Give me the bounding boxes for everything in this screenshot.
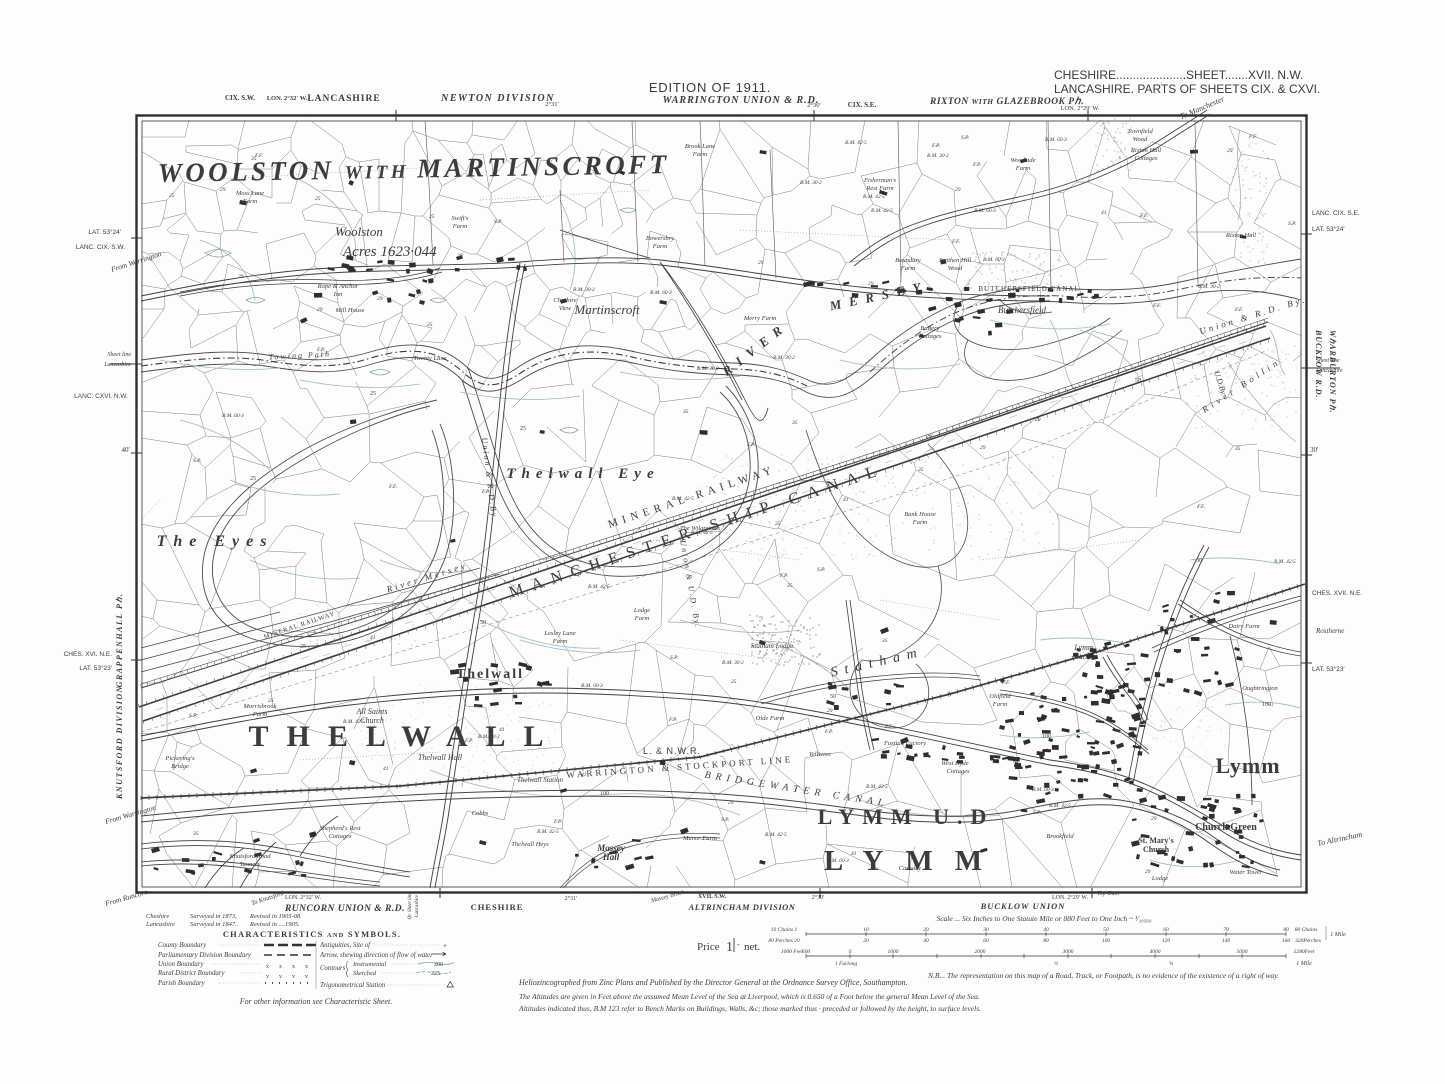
- svg-text:F.P.: F.P.: [824, 729, 833, 735]
- svg-text:KNUTSFORD DIVISION: KNUTSFORD DIVISION: [115, 685, 124, 800]
- svg-text:Contours: Contours: [320, 965, 346, 972]
- svg-text:25: 25: [268, 698, 274, 704]
- svg-text:25: 25: [520, 426, 526, 432]
- svg-text:v: v: [305, 974, 308, 980]
- svg-text:Bridge: Bridge: [171, 763, 189, 770]
- svg-text:Surveyed in 1847..: Surveyed in 1847..: [190, 921, 239, 928]
- svg-text:80 Chains: 80 Chains: [1295, 927, 1317, 933]
- svg-text:140: 140: [1222, 937, 1231, 944]
- svg-text:LAT. 53°24′: LAT. 53°24′: [1312, 225, 1345, 233]
- svg-text:50: 50: [830, 694, 836, 700]
- svg-text:LON. 2°29′ W.: LON. 2°29′ W.: [1052, 894, 1089, 901]
- svg-text:Thelwall Station: Thelwall Station: [517, 776, 564, 784]
- svg-text:Fisherman's: Fisherman's: [863, 177, 897, 184]
- svg-text:Dairy Farm: Dairy Farm: [1227, 623, 1260, 630]
- svg-text:29: 29: [827, 708, 833, 714]
- svg-text:F.F.: F.F.: [884, 724, 893, 730]
- svg-text:35: 35: [682, 409, 689, 415]
- svg-text:BUTCHERSFIELD CANAL: BUTCHERSFIELD CANAL: [978, 285, 1079, 293]
- svg-text:29: 29: [955, 187, 961, 193]
- svg-text:Top Dam: Top Dam: [1097, 891, 1120, 897]
- svg-text:Shepherd's Rest: Shepherd's Rest: [319, 825, 360, 832]
- svg-text:Woodside: Woodside: [1010, 157, 1035, 164]
- svg-text:35: 35: [1234, 446, 1241, 452]
- svg-text:Moss Lane: Moss Lane: [235, 190, 264, 197]
- svg-text:Cheshire: Cheshire: [146, 913, 169, 920]
- svg-text:1000: 1000: [888, 949, 899, 955]
- svg-text:Farm: Farm: [552, 638, 568, 645]
- svg-text:F.P.: F.P.: [746, 442, 755, 448]
- svg-text:The Eyes: The Eyes: [157, 533, 274, 550]
- svg-text:B.M. 60·3: B.M. 60·3: [1032, 787, 1054, 793]
- svg-text:29: 29: [868, 281, 874, 287]
- svg-text:60: 60: [1163, 927, 1169, 933]
- svg-text:29: 29: [1151, 816, 1157, 822]
- svg-text:0: 0: [849, 949, 852, 955]
- svg-text:GRAPPENHALL Pℎ.: GRAPPENHALL Pℎ.: [115, 593, 124, 688]
- svg-text:Lancashire: Lancashire: [1315, 368, 1343, 374]
- svg-text:Cottages: Cottages: [918, 333, 942, 340]
- svg-text:Martinscroft: Martinscroft: [573, 302, 640, 317]
- svg-text:WARRINGTON UNION & R.D.: WARRINGTON UNION & R.D.: [663, 95, 820, 106]
- svg-text:B.M. 60·3: B.M. 60·3: [983, 257, 1005, 263]
- svg-text:Parish Boundary: Parish Boundary: [157, 980, 206, 987]
- svg-text:Station: Station: [1073, 652, 1096, 661]
- svg-text:4000: 4000: [1150, 948, 1161, 955]
- svg-text:x: x: [292, 964, 295, 970]
- svg-text:Oldfield: Oldfield: [989, 693, 1011, 700]
- svg-text:View: View: [559, 305, 572, 312]
- svg-text:Farm: Farm: [912, 519, 928, 526]
- svg-text:Water Tower: Water Tower: [1230, 869, 1263, 876]
- svg-text:For other information see Char: For other information see Characteristic…: [239, 997, 392, 1006]
- svg-text:Surveyed in 1873,: Surveyed in 1873,: [190, 913, 237, 920]
- svg-text:29: 29: [926, 434, 932, 440]
- svg-text:Swift's: Swift's: [452, 215, 469, 222]
- svg-text:B.M. 60·3: B.M. 60·3: [827, 858, 849, 864]
- svg-text:Union Boundary: Union Boundary: [158, 961, 204, 968]
- svg-text:LAT. 53°23′: LAT. 53°23′: [79, 664, 112, 672]
- svg-text:35: 35: [192, 831, 199, 837]
- svg-text:B.M. 42·5: B.M. 42·5: [1049, 802, 1071, 809]
- svg-text:Inn: Inn: [333, 291, 343, 298]
- svg-text:Lymm: Lymm: [1215, 753, 1280, 778]
- svg-text:S.P.: S.P.: [1033, 810, 1041, 816]
- svg-text:CHES. XVII. N.E.: CHES. XVII. N.E.: [1312, 590, 1362, 597]
- svg-text:Woolston: Woolston: [335, 224, 383, 239]
- svg-text:Farm: Farm: [242, 198, 258, 205]
- svg-text:St. Mary's: St. Mary's: [1138, 836, 1174, 845]
- svg-text:L. & N.W.R.: L. & N.W.R.: [643, 746, 701, 756]
- svg-text:29: 29: [220, 187, 226, 193]
- svg-text:F.P.: F.P.: [668, 717, 677, 723]
- svg-text:Yellivree: Yellivree: [809, 751, 831, 758]
- svg-text:LYMM U.D: LYMM U.D: [818, 804, 995, 829]
- svg-text:CHES. XVI. N.E.: CHES. XVI. N.E.: [64, 651, 113, 658]
- svg-text:F.P.: F.P.: [553, 819, 562, 825]
- svg-text:Church Green: Church Green: [1195, 822, 1257, 833]
- svg-text:29: 29: [1227, 148, 1233, 154]
- svg-text:10: 10: [863, 927, 869, 933]
- svg-text:Cheshire: Cheshire: [553, 297, 576, 304]
- svg-text:2°31′: 2°31′: [565, 895, 578, 902]
- svg-text:LANC. CXVI. N.W.: LANC. CXVI. N.W.: [74, 393, 128, 400]
- svg-text:40: 40: [923, 937, 929, 944]
- svg-text:2°30′: 2°30′: [807, 102, 821, 109]
- svg-text:B.M. 30·2: B.M. 30·2: [722, 660, 744, 666]
- svg-text:S.P.: S.P.: [817, 567, 825, 573]
- svg-text:Lancashire: Lancashire: [415, 894, 420, 918]
- svg-text:Altitudes indicated thus, B.M: Altitudes indicated thus, B.M 123 refer …: [518, 1004, 981, 1013]
- svg-text:Mill House: Mill House: [334, 307, 364, 314]
- svg-text:Farm: Farm: [900, 265, 916, 272]
- svg-text:30: 30: [982, 927, 989, 933]
- svg-text:1 Mile: 1 Mile: [1296, 961, 1312, 967]
- svg-text:80 Perches 20: 80 Perches 20: [768, 938, 800, 944]
- svg-text:B.M. 42·5: B.M. 42·5: [588, 583, 610, 590]
- svg-text:Acres 1623·044: Acres 1623·044: [342, 244, 437, 260]
- svg-text:+: +: [443, 942, 447, 950]
- svg-text:100: 100: [1042, 734, 1051, 740]
- svg-text:LANC. CIX. S.W.: LANC. CIX. S.W.: [76, 244, 125, 251]
- svg-text:LON. 2°32′ W.: LON. 2°32′ W.: [285, 894, 322, 901]
- svg-text:5280Feet: 5280Feet: [1294, 949, 1315, 955]
- svg-text:29: 29: [457, 253, 463, 259]
- svg-text:50: 50: [1103, 927, 1109, 933]
- svg-text:EDITION OF 1911.: EDITION OF 1911.: [649, 80, 771, 95]
- svg-text:Sheet line: Sheet line: [1316, 358, 1340, 364]
- svg-text:Brook Lane: Brook Lane: [685, 143, 715, 150]
- svg-text:35: 35: [917, 467, 924, 473]
- svg-text:Sketched: Sketched: [353, 970, 377, 977]
- svg-text:F.P.: F.P.: [931, 143, 940, 149]
- svg-text:25: 25: [300, 644, 306, 650]
- svg-text:Wood: Wood: [1133, 136, 1148, 143]
- svg-text:29: 29: [1145, 869, 1151, 875]
- svg-text:Swithen Hill: Swithen Hill: [939, 257, 972, 264]
- svg-text:B.M. 42·5: B.M. 42·5: [1274, 558, 1296, 565]
- svg-text:S.P.: S.P.: [961, 135, 969, 141]
- svg-text:29: 29: [980, 445, 986, 451]
- svg-text:Oughtrington: Oughtrington: [1242, 685, 1277, 692]
- svg-text:Lymm: Lymm: [1073, 643, 1094, 652]
- svg-text:Rixton Hall: Rixton Hall: [1225, 232, 1256, 239]
- svg-text:Lesley Lane: Lesley Lane: [543, 630, 575, 637]
- svg-text:-: -: [737, 940, 740, 949]
- svg-text:RUNCORN UNION & R.D.: RUNCORN UNION & R.D.: [284, 904, 405, 914]
- svg-text:160: 160: [1282, 938, 1291, 944]
- svg-text:S.P.: S.P.: [1288, 221, 1296, 227]
- svg-text:B.M. 42·5: B.M. 42·5: [343, 718, 365, 725]
- svg-text:CHESHIRE: CHESHIRE: [471, 902, 524, 912]
- svg-text:F.P.: F.P.: [316, 347, 325, 353]
- svg-text:½: ½: [1054, 960, 1058, 967]
- svg-text:LAT. 53°24′: LAT. 53°24′: [88, 228, 121, 236]
- svg-text:3000: 3000: [1062, 949, 1074, 955]
- svg-text:Lancashire: Lancashire: [145, 921, 175, 928]
- svg-text:S.P.: S.P.: [721, 817, 729, 823]
- svg-text:B.M. 30·2: B.M. 30·2: [573, 287, 595, 293]
- svg-text:B.M. 30·2: B.M. 30·2: [927, 153, 949, 159]
- svg-text:F.P.: F.P.: [972, 162, 981, 168]
- svg-text:F.F.: F.F.: [388, 484, 397, 490]
- svg-text:80: 80: [1283, 927, 1289, 933]
- svg-text:25: 25: [775, 521, 781, 527]
- svg-text:CIX. S.E.: CIX. S.E.: [848, 101, 877, 109]
- svg-text:¾: ¾: [1169, 961, 1173, 967]
- svg-text:B.M. 30·2: B.M. 30·2: [773, 355, 795, 361]
- svg-text:Bank House: Bank House: [904, 511, 936, 518]
- svg-text:F.F.: F.F.: [1234, 307, 1243, 313]
- svg-text:100: 100: [1102, 938, 1111, 944]
- svg-text:Sheet line: Sheet line: [108, 352, 132, 358]
- svg-text:B.M. 42·5: B.M. 42·5: [691, 529, 713, 536]
- svg-text:29: 29: [758, 260, 764, 266]
- svg-text:Farm: Farm: [634, 615, 650, 622]
- svg-text:100: 100: [1262, 702, 1271, 708]
- svg-text:Farm: Farm: [652, 243, 668, 250]
- svg-text:CIX. S.W.: CIX. S.W.: [225, 94, 255, 102]
- svg-text:320Perches: 320Perches: [1294, 938, 1321, 944]
- svg-text:XVII. S.W.: XVII. S.W.: [698, 894, 727, 900]
- svg-text:70: 70: [1223, 927, 1229, 933]
- svg-text:B.M. 42·5: B.M. 42·5: [866, 783, 888, 790]
- svg-text:Thelwall Heys: Thelwall Heys: [511, 841, 549, 848]
- svg-text:1 Furlong: 1 Furlong: [835, 961, 857, 967]
- svg-text:F.F.: F.F.: [1152, 303, 1161, 309]
- svg-text:29: 29: [317, 307, 323, 313]
- svg-text:Butchersfield: Butchersfield: [998, 305, 1046, 315]
- svg-text:Instrumental: Instrumental: [352, 961, 386, 968]
- svg-text:Battery: Battery: [920, 325, 939, 332]
- svg-text:29: 29: [238, 274, 244, 280]
- svg-text:B.M. 42·5: B.M. 42·5: [845, 139, 867, 146]
- svg-text:2°31′: 2°31′: [545, 101, 559, 108]
- svg-text:Trigonometrical Station: Trigonometrical Station: [320, 982, 386, 989]
- svg-text:25: 25: [169, 193, 175, 199]
- svg-text:25: 25: [429, 214, 435, 220]
- svg-text:41: 41: [383, 765, 389, 772]
- svg-text:S.P.: S.P.: [670, 655, 678, 661]
- svg-text:F.F.: F.F.: [254, 153, 263, 159]
- svg-text:Rest Farm: Rest Farm: [865, 185, 894, 192]
- svg-text:F.F.: F.F.: [1001, 680, 1010, 686]
- svg-text:NEWTON DIVISION: NEWTON DIVISION: [440, 93, 555, 104]
- svg-text:80: 80: [1043, 938, 1049, 944]
- svg-text:2°30′: 2°30′: [812, 894, 825, 901]
- svg-text:50: 50: [480, 620, 486, 626]
- svg-text:LAT. 53°23′: LAT. 53°23′: [1312, 665, 1345, 673]
- svg-text:41: 41: [499, 726, 505, 733]
- svg-text:Antiquities, Site of: Antiquities, Site of: [319, 942, 371, 949]
- svg-text:41: 41: [1101, 209, 1107, 216]
- svg-text:Thelwall: Thelwall: [456, 667, 524, 682]
- svg-text:30′: 30′: [1310, 446, 1319, 454]
- svg-text:35: 35: [881, 638, 888, 644]
- svg-text:Price: Price: [697, 941, 720, 953]
- svg-text:41: 41: [370, 634, 376, 641]
- svg-text:Twenty Lane: Twenty Lane: [414, 355, 447, 362]
- svg-text:v: v: [279, 974, 282, 980]
- svg-text:Cottages: Cottages: [1134, 155, 1158, 162]
- svg-text:225: 225: [431, 971, 440, 977]
- svg-text:60: 60: [983, 938, 989, 944]
- svg-text:25: 25: [427, 322, 433, 328]
- svg-text:Thelwall Hall: Thelwall Hall: [418, 753, 463, 762]
- svg-text:200: 200: [434, 962, 443, 968]
- svg-text:x: x: [266, 964, 269, 970]
- svg-text:25: 25: [315, 196, 321, 202]
- svg-text:41: 41: [851, 850, 857, 857]
- svg-text:ALTRINCHAM DIVISION: ALTRINCHAM DIVISION: [688, 902, 796, 912]
- svg-text:Morrisbrook: Morrisbrook: [243, 703, 277, 710]
- svg-text:County Boundary: County Boundary: [158, 942, 207, 949]
- svg-text:Wood: Wood: [948, 265, 963, 272]
- svg-text:Camsley: Camsley: [899, 865, 922, 872]
- svg-text:29: 29: [728, 800, 734, 806]
- svg-text:F.F.: F.F.: [1139, 213, 1148, 219]
- svg-text:LYMM: LYMM: [824, 845, 1004, 877]
- svg-text:Cottages: Cottages: [328, 833, 352, 840]
- svg-text:S.P.: S.P.: [494, 219, 502, 225]
- svg-text:F.F.: F.F.: [1248, 134, 1257, 140]
- svg-text:120: 120: [1162, 938, 1171, 944]
- svg-text:S.P.: S.P.: [189, 713, 197, 719]
- svg-text:Cottages: Cottages: [946, 768, 970, 775]
- svg-text:S.P.: S.P.: [193, 458, 201, 464]
- svg-text:Heliozincographed from Zinc Pl: Heliozincographed from Zinc Plans and Pu…: [518, 978, 908, 987]
- svg-text:N.B... The representation on t: N.B... The representation on this map of…: [927, 971, 1279, 980]
- svg-text:Parliamentary Division Boundar: Parliamentary Division Boundary: [157, 952, 252, 959]
- svg-text:Rural District Boundary: Rural District Boundary: [157, 970, 225, 977]
- svg-text:THELWALL: THELWALL: [249, 720, 562, 753]
- svg-text:v: v: [292, 974, 295, 980]
- svg-text:29: 29: [1035, 417, 1041, 423]
- svg-text:1000 Feet: 1000 Feet: [781, 949, 804, 955]
- svg-text:Townfield: Townfield: [1127, 128, 1153, 135]
- svg-text:Brookfield: Brookfield: [1046, 833, 1074, 840]
- svg-text:Pickering's: Pickering's: [164, 755, 195, 762]
- svg-text:B.M. 60·3: B.M. 60·3: [974, 208, 996, 214]
- svg-text:Revised in 1905-08.: Revised in 1905-08.: [249, 913, 302, 920]
- svg-text:Farm: Farm: [692, 151, 708, 158]
- svg-text:Revised in ....1905.: Revised in ....1905.: [249, 921, 300, 928]
- svg-text:40′: 40′: [121, 446, 130, 454]
- svg-text:Fustian Factory: Fustian Factory: [883, 740, 926, 747]
- svg-text:B.M. 60·3: B.M. 60·3: [581, 683, 603, 689]
- svg-text:25: 25: [731, 679, 737, 685]
- svg-text:Rostherne: Rostherne: [1315, 627, 1344, 635]
- svg-text:x: x: [279, 964, 282, 970]
- svg-text:Church: Church: [1143, 845, 1170, 854]
- svg-text:5000: 5000: [1237, 949, 1248, 955]
- svg-text:B.M. 42·5: B.M. 42·5: [863, 193, 885, 200]
- svg-text:Lancashire: Lancashire: [103, 362, 131, 368]
- svg-text:1: 1: [726, 940, 733, 955]
- svg-text:All Saints: All Saints: [356, 707, 388, 716]
- svg-text:B.M. 60·3: B.M. 60·3: [222, 413, 244, 419]
- svg-text:B.M. 42·5: B.M. 42·5: [672, 495, 694, 502]
- svg-text:Farm: Farm: [452, 223, 468, 230]
- svg-text:25: 25: [250, 476, 256, 482]
- svg-text:B.M. 30·2: B.M. 30·2: [478, 734, 500, 740]
- svg-text:Hall: Hall: [602, 852, 620, 862]
- svg-text:CHARACTERISTICS AND SYMBOLS.: CHARACTERISTICS AND SYMBOLS.: [223, 929, 401, 939]
- svg-text:B.M. 60·3: B.M. 60·3: [650, 290, 672, 296]
- svg-text:20: 20: [923, 927, 929, 933]
- svg-text:Rope & Anchor: Rope & Anchor: [317, 283, 359, 290]
- svg-text:Thelwall Eye: Thelwall Eye: [506, 466, 659, 482]
- svg-text:29: 29: [377, 296, 383, 302]
- svg-text:Statham Lodge: Statham Lodge: [751, 642, 793, 650]
- svg-text:41: 41: [581, 771, 587, 778]
- svg-text:41: 41: [843, 496, 849, 503]
- svg-text:B.M. 30·2: B.M. 30·2: [1198, 284, 1220, 290]
- svg-text:10 Chains 1: 10 Chains 1: [771, 927, 798, 933]
- svg-text:F.F.: F.F.: [951, 239, 960, 245]
- svg-text:LON. 2°29′ W.: LON. 2°29′ W.: [1060, 105, 1099, 112]
- svg-text:500: 500: [802, 949, 811, 955]
- svg-text:B.M. 42·5: B.M. 42·5: [871, 207, 893, 214]
- svg-text:B.M. 30·2: B.M. 30·2: [800, 180, 822, 186]
- svg-text:The Altitudes are given in Fee: The Altitudes are given in Feet above th…: [519, 992, 980, 1001]
- svg-text:50: 50: [1196, 558, 1202, 564]
- svg-text:Rixton Hall: Rixton Hall: [1130, 147, 1161, 154]
- svg-text:Boundary: Boundary: [895, 257, 921, 264]
- svg-text:F.P.: F.P.: [481, 489, 490, 495]
- svg-text:Merry Farm: Merry Farm: [743, 315, 777, 322]
- svg-text:B.M. 42·5: B.M. 42·5: [765, 831, 787, 838]
- svg-text:Manor Farm: Manor Farm: [682, 835, 717, 842]
- svg-text:Farm: Farm: [252, 711, 268, 718]
- svg-text:LANCASHIRE. PARTS OF SHEETS CI: LANCASHIRE. PARTS OF SHEETS CIX. & CXVI.: [1054, 82, 1320, 96]
- svg-text:F.P.: F.P.: [779, 573, 788, 579]
- svg-text:West Hyde: West Hyde: [941, 760, 968, 767]
- svg-text:35: 35: [786, 583, 793, 589]
- svg-text:40: 40: [1043, 926, 1049, 933]
- svg-text:Qr. Sheet line: Qr. Sheet line: [408, 892, 413, 920]
- svg-text:LANC. CIX. S.E.: LANC. CIX. S.E.: [1312, 210, 1360, 217]
- svg-text:Olde Farm: Olde Farm: [756, 715, 785, 722]
- svg-text:Scale ... Six Inches to One St: Scale ... Six Inches to One Statute Mile…: [936, 914, 1152, 923]
- svg-text:F.F.: F.F.: [1196, 504, 1205, 510]
- svg-text:net.: net.: [744, 941, 760, 953]
- svg-text:BUCKLOW UNION: BUCKLOW UNION: [980, 901, 1066, 911]
- svg-text:x: x: [305, 964, 308, 970]
- svg-text:CHESHIRE.....................S: CHESHIRE.....................SHEET......…: [1054, 68, 1303, 82]
- svg-text:LON. 2°32′ W.: LON. 2°32′ W.: [267, 95, 308, 102]
- svg-text:Cobbs: Cobbs: [472, 810, 489, 817]
- svg-text:Bowersbry: Bowersbry: [646, 235, 674, 242]
- svg-text:35: 35: [791, 420, 798, 426]
- svg-text:B.M. 30·2: B.M. 30·2: [697, 366, 719, 372]
- svg-text:Farm: Farm: [1015, 165, 1031, 172]
- svg-text:LANCASHIRE: LANCASHIRE: [307, 94, 380, 104]
- svg-text:2000: 2000: [975, 949, 986, 955]
- svg-text:Lodge: Lodge: [1151, 875, 1168, 882]
- svg-text:20: 20: [863, 938, 869, 944]
- svg-text:B.M. 42·5: B.M. 42·5: [537, 828, 559, 835]
- svg-text:Farm: Farm: [992, 701, 1008, 708]
- svg-text:25: 25: [370, 391, 376, 397]
- svg-text:Lodge: Lodge: [633, 607, 650, 614]
- svg-text:1 Mile: 1 Mile: [1330, 932, 1346, 938]
- svg-text:F.P.: F.P.: [464, 738, 473, 744]
- svg-text:Arrow, shewing direction of fl: Arrow, shewing direction of flow of wate…: [319, 952, 433, 959]
- svg-text:v: v: [266, 974, 269, 980]
